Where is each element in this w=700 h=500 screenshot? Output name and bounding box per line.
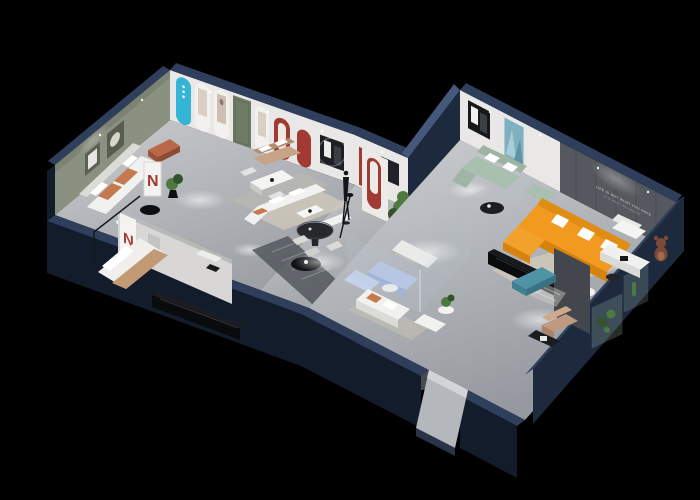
art-inset [480,112,487,134]
floor-spotlight [294,252,346,272]
plant-foliage [173,174,183,184]
display-plant [604,327,610,333]
cyan-arch-panel [176,75,191,127]
mannequin-head [344,171,349,176]
lamp-head [347,193,354,197]
niche-poster [217,93,226,124]
display-plant [607,310,616,319]
table-tray [540,336,547,341]
round-coffee-table [140,205,160,215]
black-tray-table [606,274,620,281]
table-plant [448,295,455,302]
black-round-table [480,202,504,214]
table-decor [308,209,312,213]
display-cactus [632,282,636,296]
art-inset [324,140,331,158]
showroom-render: 3D isometric cutaway render of a furnitu… [0,0,700,500]
pillar-arch-inner [370,160,378,196]
red-arch-niche [297,128,311,170]
tableware [309,228,312,231]
table-tray [620,256,628,261]
floorplan-svg: 3D isometric cutaway render of a furnitu… [0,0,700,500]
red-arch-pillar [362,148,388,222]
round-table [438,306,454,314]
table-decor [487,204,491,208]
display-plant [597,317,607,327]
panel-glyph: N [147,173,159,190]
display-panel-n: N [144,162,161,196]
table-decor [270,178,274,182]
west-corner-outer-wall [47,165,55,221]
niche-poster [258,111,266,138]
floor-spotlight [174,190,226,210]
bear-belly [658,252,665,261]
niche-poster [198,88,207,117]
